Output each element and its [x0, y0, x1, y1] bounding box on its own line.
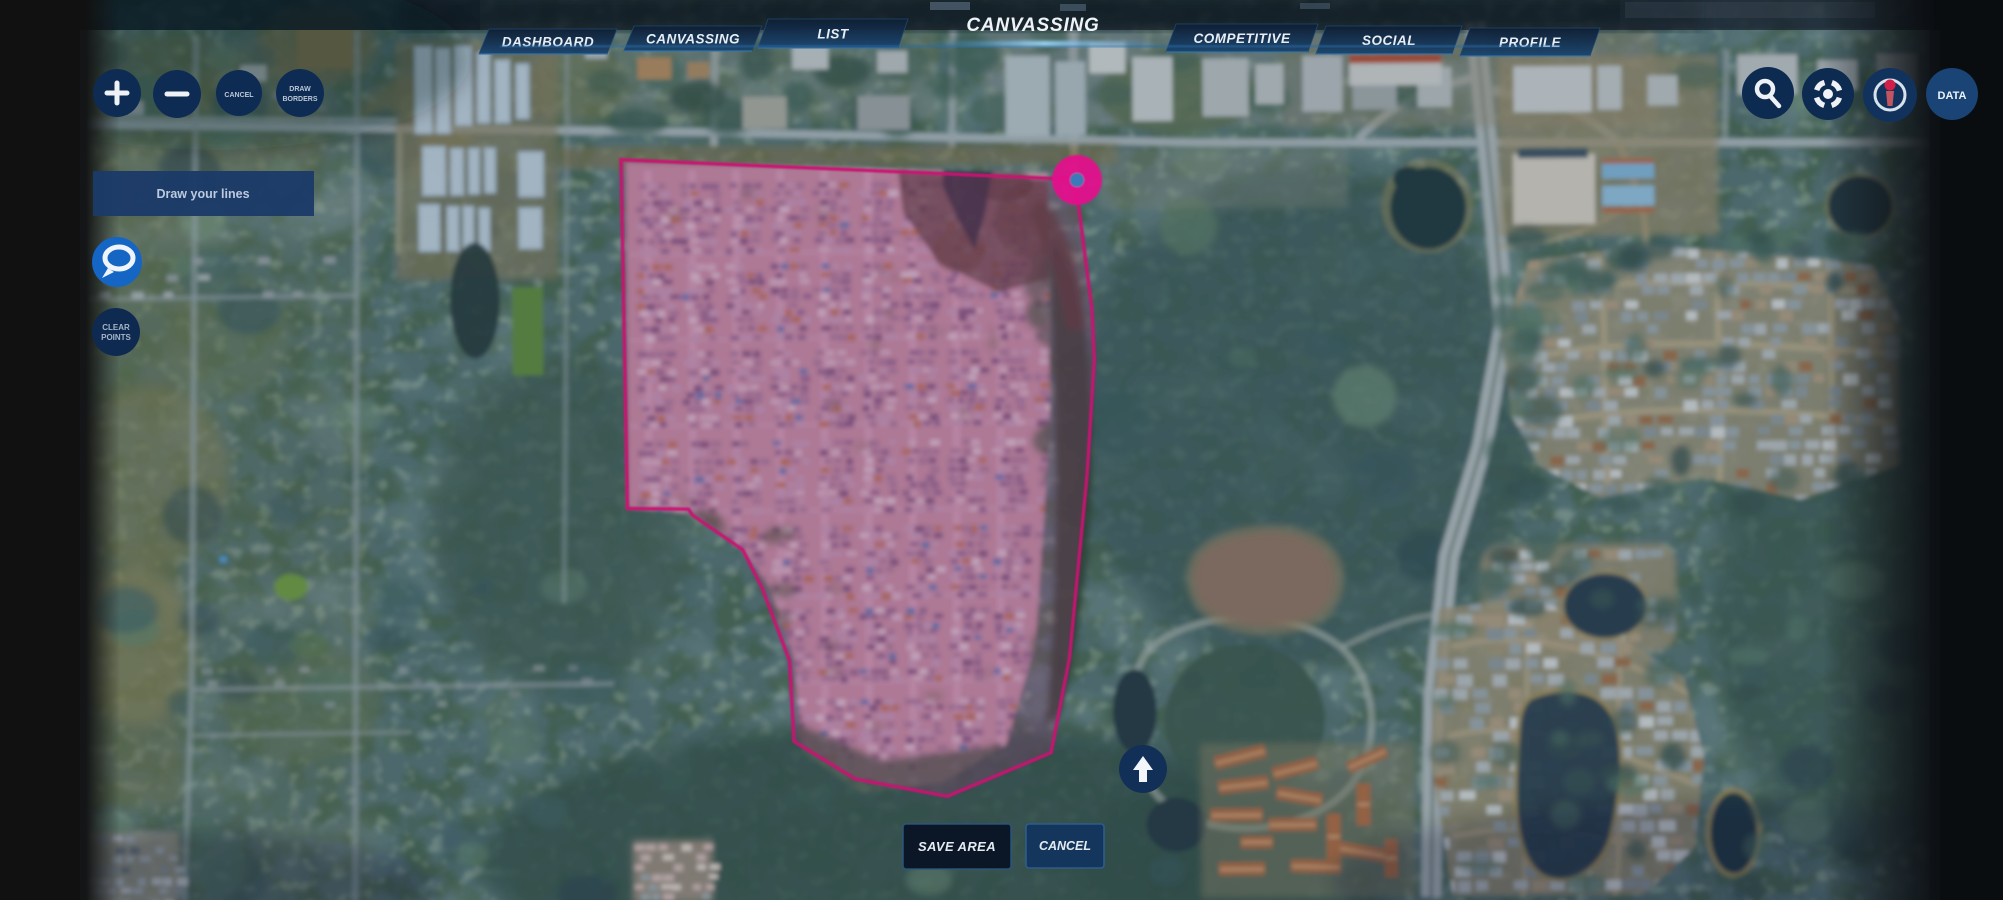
svg-text:POINTS: POINTS [101, 333, 131, 342]
svg-text:BORDERS: BORDERS [282, 96, 317, 103]
svg-text:LIST: LIST [817, 26, 850, 41]
svg-text:DATA: DATA [1938, 90, 1967, 102]
svg-text:CLEAR: CLEAR [102, 323, 130, 332]
svg-text:COMPETITIVE: COMPETITIVE [1193, 31, 1291, 46]
svg-text:CANVASSING: CANVASSING [966, 15, 1099, 36]
svg-text:PROFILE: PROFILE [1499, 35, 1561, 50]
svg-text:CANVASSING: CANVASSING [646, 31, 740, 46]
svg-text:DRAW: DRAW [289, 86, 311, 93]
svg-text:CANCEL: CANCEL [224, 92, 254, 99]
svg-text:Draw your lines: Draw your lines [156, 187, 249, 201]
svg-text:SAVE AREA: SAVE AREA [918, 839, 996, 854]
svg-text:CANCEL: CANCEL [1039, 839, 1091, 853]
